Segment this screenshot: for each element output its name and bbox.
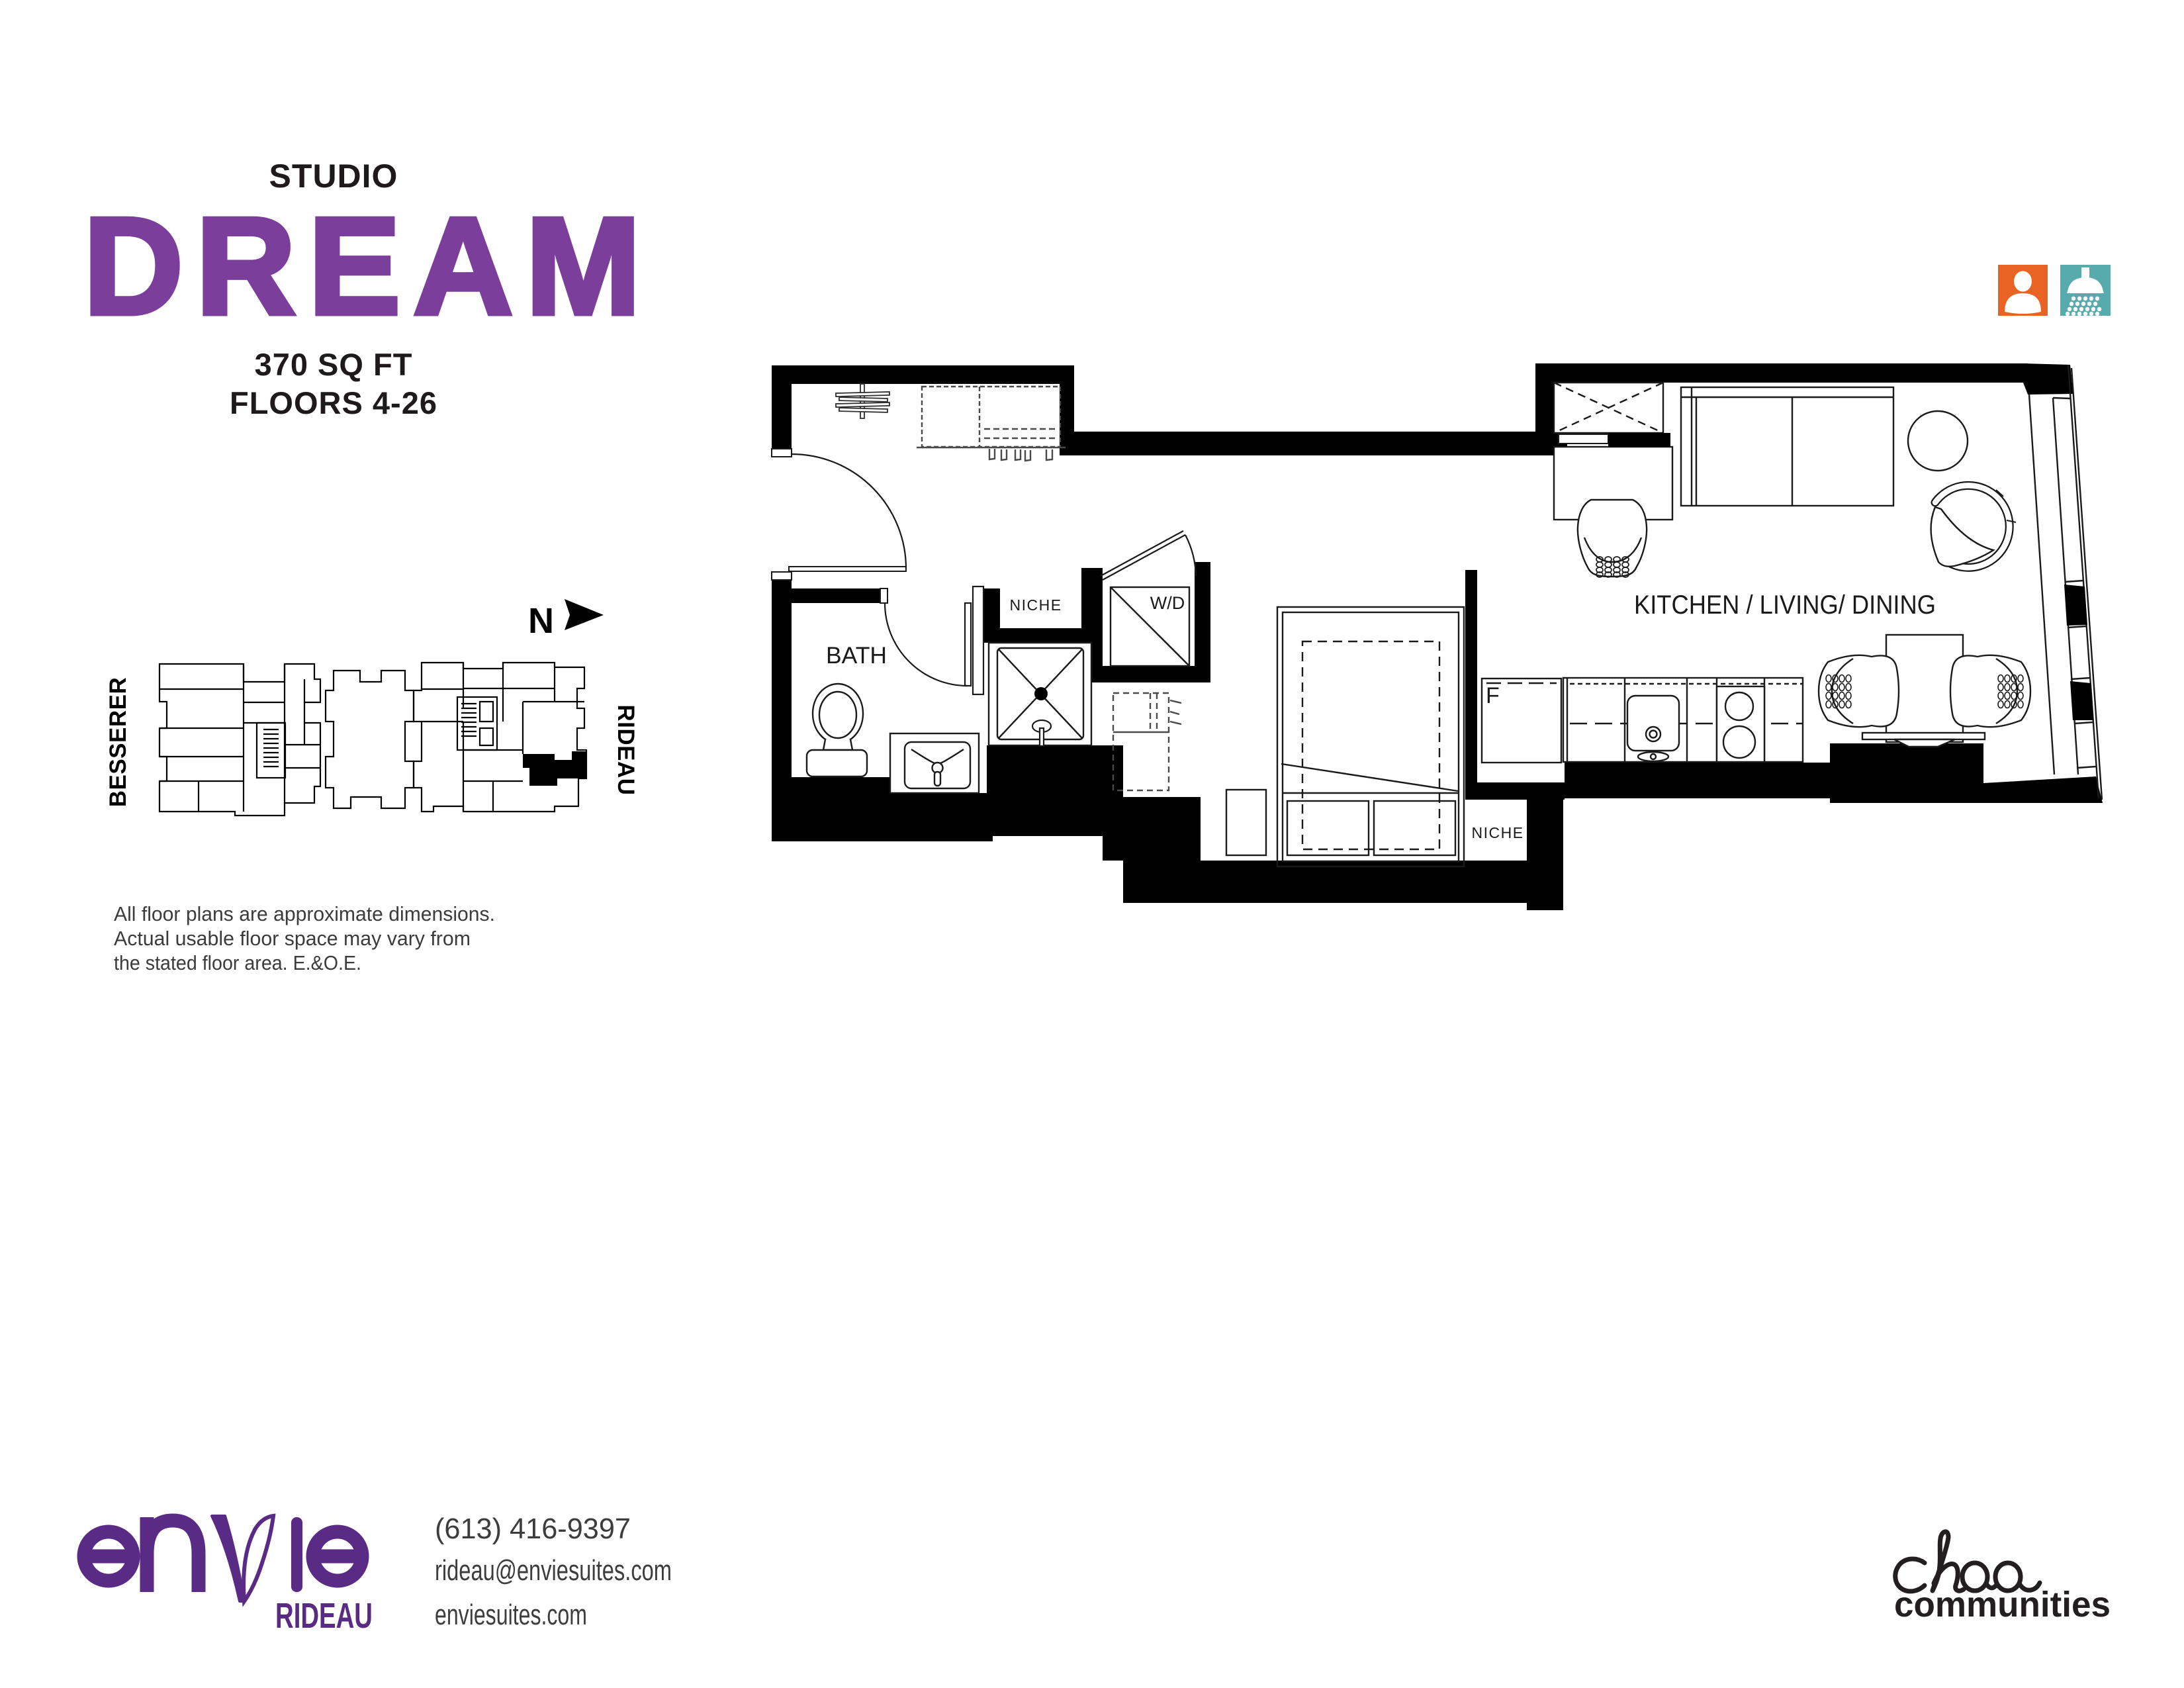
svg-text:NICHE: NICHE <box>1009 596 1062 614</box>
svg-text:W/D: W/D <box>1150 593 1185 613</box>
svg-text:BESSERER: BESSERER <box>105 677 131 808</box>
svg-text:(613) 416-9397: (613) 416-9397 <box>435 1513 631 1545</box>
svg-text:DREAM: DREAM <box>83 189 653 344</box>
svg-text:NICHE: NICHE <box>1471 824 1524 841</box>
svg-text:All floor plans are approximat: All floor plans are approximate dimensio… <box>114 902 495 925</box>
svg-text:RIDEAU: RIDEAU <box>613 704 639 795</box>
svg-text:370 SQ FT: 370 SQ FT <box>255 347 413 382</box>
svg-text:F: F <box>1486 683 1500 708</box>
svg-text:Actual usable floor space may: Actual usable floor space may vary from <box>114 927 471 950</box>
svg-text:rideau@enviesuites.com: rideau@enviesuites.com <box>435 1554 672 1587</box>
svg-text:enviesuites.com: enviesuites.com <box>435 1599 587 1631</box>
svg-text:KITCHEN / LIVING/ DINING: KITCHEN / LIVING/ DINING <box>1634 590 1936 620</box>
svg-text:FLOORS 4-26: FLOORS 4-26 <box>230 385 437 420</box>
svg-text:the stated floor area. E.&O.E.: the stated floor area. E.&O.E. <box>114 951 361 974</box>
svg-text:RIDEAU: RIDEAU <box>275 1596 373 1636</box>
svg-text:BATH: BATH <box>826 643 887 669</box>
svg-text:N: N <box>528 601 554 641</box>
svg-text:communities: communities <box>1894 1585 2111 1624</box>
